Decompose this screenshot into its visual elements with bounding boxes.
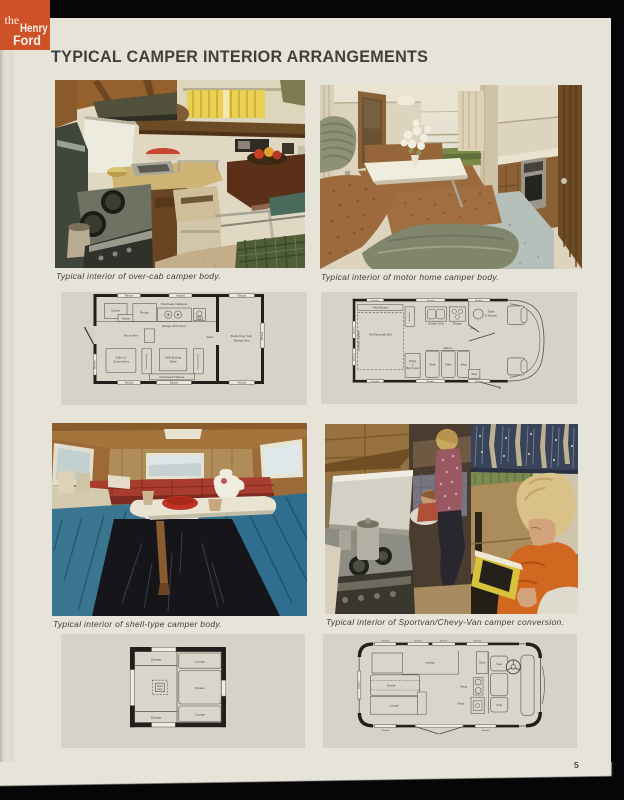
svg-text:Window: Window <box>371 300 379 302</box>
svg-text:& Shower: & Shower <box>485 314 498 318</box>
svg-text:Window: Window <box>176 295 185 298</box>
svg-text:Heater: Heater <box>122 316 130 320</box>
svg-text:Vent: Vent <box>157 688 162 691</box>
svg-text:Window: Window <box>353 326 355 334</box>
svg-text:Window: Window <box>93 360 96 369</box>
svg-text:Window: Window <box>473 641 481 643</box>
svg-text:Lounge: Lounge <box>390 704 399 708</box>
svg-text:Overhead Cabinet: Overhead Cabinet <box>159 375 184 379</box>
svg-text:Seat: Seat <box>461 363 467 367</box>
svg-text:Window: Window <box>170 382 179 385</box>
svg-text:Overhead Cabinets: Overhead Cabinets <box>161 302 188 306</box>
svg-text:Window: Window <box>427 300 435 302</box>
svg-text:Sink: Sink <box>197 318 201 320</box>
svg-text:Table: Table <box>169 360 177 364</box>
svg-text:Cushioned Seat: Cushioned Seat <box>197 353 200 369</box>
svg-text:Writing: Writing <box>409 360 417 363</box>
svg-text:Window: Window <box>261 331 264 340</box>
svg-text:Full (Second) Bed: Full (Second) Bed <box>369 333 393 337</box>
svg-text:Window: Window <box>353 353 355 361</box>
svg-text:Head Board: Head Board <box>372 306 388 310</box>
svg-text:Range: Range <box>453 322 462 326</box>
svg-text:Overhead Cabinets: Overhead Cabinets <box>358 330 361 351</box>
svg-text:Window: Window <box>440 641 448 643</box>
svg-text:Seat: Seat <box>496 662 502 666</box>
svg-text:Window: Window <box>125 382 134 385</box>
svg-text:Cabinets: Cabinets <box>443 347 453 350</box>
svg-text:Closet Area: Closet Area <box>113 360 129 364</box>
svg-text:Window: Window <box>482 730 490 732</box>
svg-text:High Counter: High Counter <box>406 367 420 370</box>
svg-text:Window: Window <box>381 641 389 643</box>
svg-text:Range: Range <box>461 687 468 689</box>
svg-text:Dinette: Dinette <box>387 684 396 688</box>
svg-text:Window: Window <box>475 300 483 302</box>
svg-text:Closet: Closet <box>111 309 120 313</box>
svg-text:Lounge: Lounge <box>426 661 435 665</box>
svg-text:Window: Window <box>238 382 247 385</box>
svg-text:Step: Step <box>471 372 477 376</box>
svg-text:Window: Window <box>238 295 247 298</box>
svg-text:Cushioned Seat: Cushioned Seat <box>145 353 148 369</box>
svg-text:Window: Window <box>427 381 435 383</box>
svg-text:Range with Oven: Range with Oven <box>162 324 186 328</box>
svg-text:Seat: Seat <box>429 363 435 367</box>
svg-text:Window: Window <box>381 730 389 732</box>
svg-text:Bunk Over Cab: Bunk Over Cab <box>231 334 252 338</box>
svg-text:Door: Door <box>471 327 476 330</box>
svg-text:Lounge: Lounge <box>195 660 205 664</box>
svg-text:Roof Vent: Roof Vent <box>124 334 138 338</box>
svg-text:Door: Door <box>207 335 214 339</box>
svg-text:Storage: Storage <box>151 658 162 662</box>
svg-text:Wardrobe: Wardrobe <box>408 311 411 321</box>
svg-text:Window: Window <box>371 381 379 383</box>
svg-text:Window: Window <box>125 295 134 298</box>
svg-text:Refrig.: Refrig. <box>458 703 465 706</box>
svg-text:Window: Window <box>359 681 361 689</box>
svg-text:Storage: Storage <box>151 716 162 720</box>
svg-text:Refrig.: Refrig. <box>140 311 149 315</box>
svg-text:Closet: Closet <box>479 662 486 665</box>
svg-text:Dinette: Dinette <box>195 686 205 690</box>
svg-text:Lounge: Lounge <box>195 713 205 717</box>
svg-text:Seat: Seat <box>496 703 502 707</box>
svg-text:Sleeps Two: Sleeps Two <box>234 339 250 343</box>
svg-text:Table: Table <box>445 363 452 367</box>
svg-text:Window: Window <box>414 641 422 643</box>
svg-text:Double Sink: Double Sink <box>428 322 444 326</box>
